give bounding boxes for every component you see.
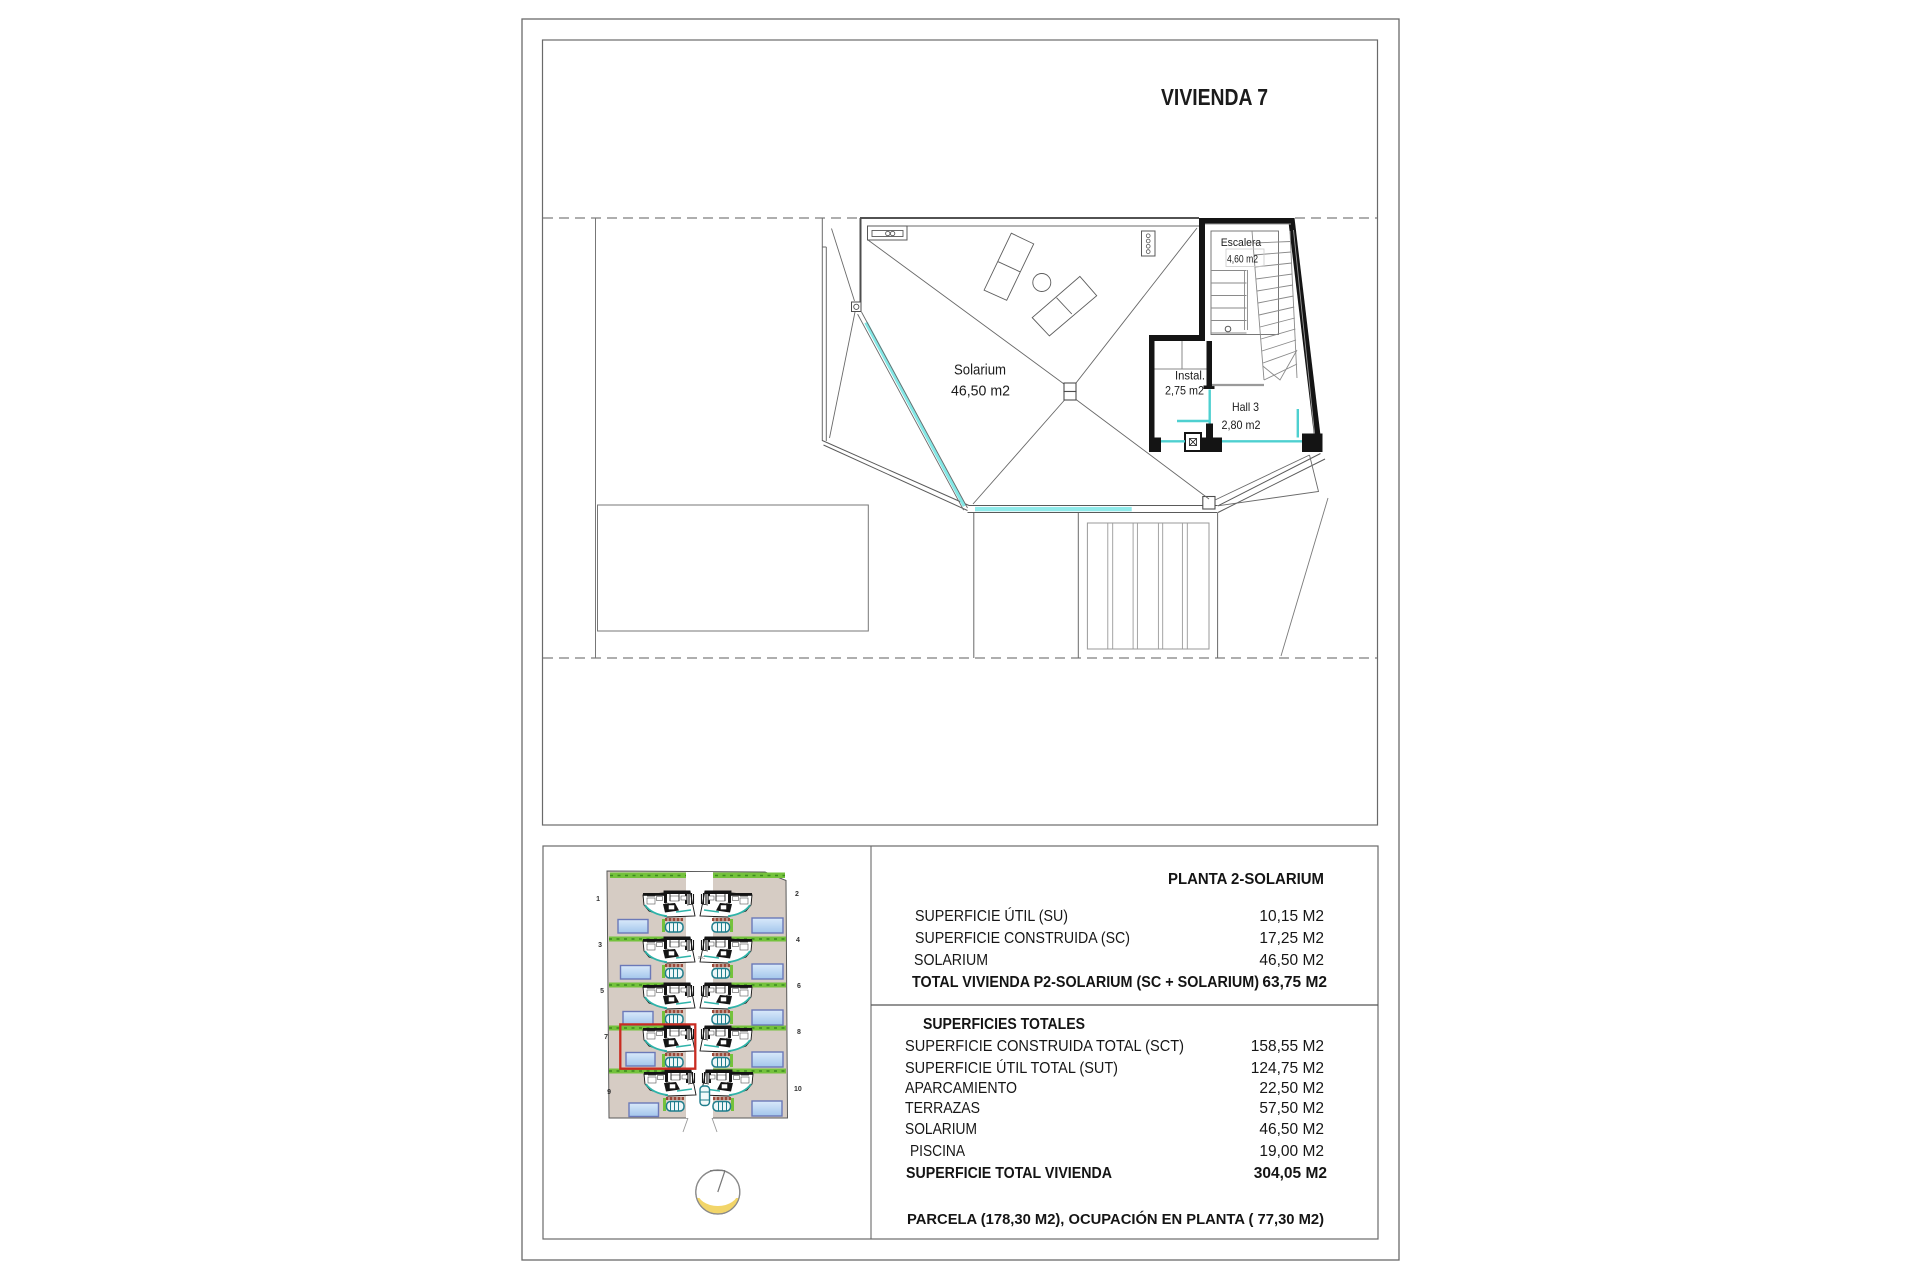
svg-text:SUPERFICIE TOTAL VIVIENDA: SUPERFICIE TOTAL VIVIENDA [906, 1165, 1112, 1182]
svg-text:8: 8 [797, 1029, 801, 1036]
svg-text:SUPERFICIE CONSTRUIDA TOTAL (S: SUPERFICIE CONSTRUIDA TOTAL (SCT) [905, 1038, 1184, 1055]
svg-text:57,50 M2: 57,50 M2 [1259, 1100, 1324, 1117]
svg-text:10: 10 [794, 1086, 802, 1093]
svg-text:APARCAMIENTO: APARCAMIENTO [905, 1080, 1017, 1097]
svg-text:124,75 M2: 124,75 M2 [1251, 1060, 1324, 1077]
svg-text:PISCINA: PISCINA [910, 1143, 966, 1160]
svg-text:s.c: s.c [698, 955, 705, 961]
svg-text:Solarium: Solarium [954, 362, 1006, 379]
svg-text:TERRAZAS: TERRAZAS [905, 1100, 980, 1117]
svg-text:Instal.: Instal. [1175, 371, 1205, 383]
svg-text:SUPERFICIES TOTALES: SUPERFICIES TOTALES [923, 1016, 1085, 1033]
svg-text:7: 7 [604, 1034, 608, 1041]
svg-text:SUPERFICIE CONSTRUIDA (SC): SUPERFICIE CONSTRUIDA (SC) [915, 930, 1130, 947]
svg-text:4: 4 [796, 937, 800, 944]
svg-text:17,25 M2: 17,25 M2 [1259, 930, 1324, 947]
svg-text:19,00 M2: 19,00 M2 [1259, 1143, 1324, 1160]
svg-text:SOLARIUM: SOLARIUM [905, 1121, 977, 1138]
svg-text:2,75 m2: 2,75 m2 [1165, 386, 1204, 398]
svg-text:9: 9 [607, 1089, 611, 1096]
svg-text:5: 5 [600, 988, 604, 995]
svg-text:PARCELA (178,30 M2), OCUPACIÓ: PARCELA (178,30 M2), OCUPACIÓN EN PLANTA… [907, 1210, 1324, 1228]
svg-text:2,80 m2: 2,80 m2 [1222, 418, 1261, 432]
svg-text:SUPERFICIE ÚTIL TOTAL (SUT): SUPERFICIE ÚTIL TOTAL (SUT) [905, 1060, 1118, 1077]
svg-text:TOTAL VIVIENDA P2-SOLARIUM (SC: TOTAL VIVIENDA P2-SOLARIUM (SC + SOLARIU… [912, 974, 1259, 991]
svg-text:304,05 M2: 304,05 M2 [1254, 1165, 1327, 1182]
svg-text:10,15 M2: 10,15 M2 [1259, 908, 1324, 925]
svg-text:Hall 3: Hall 3 [1232, 400, 1259, 414]
svg-text:46,50 m2: 46,50 m2 [951, 383, 1010, 400]
svg-text:VIVIENDA 7: VIVIENDA 7 [1161, 84, 1268, 110]
svg-text:46,50 M2: 46,50 M2 [1259, 1121, 1324, 1138]
svg-text:SUPERFICIE ÚTIL (SU): SUPERFICIE ÚTIL (SU) [915, 908, 1068, 925]
svg-text:PLANTA 2-SOLARIUM: PLANTA 2-SOLARIUM [1168, 871, 1324, 888]
svg-text:3: 3 [598, 942, 602, 949]
svg-text:1: 1 [596, 896, 600, 903]
svg-text:63,75 M2: 63,75 M2 [1262, 974, 1327, 991]
svg-text:2: 2 [795, 891, 799, 898]
svg-text:SOLARIUM: SOLARIUM [914, 952, 988, 969]
svg-text:6: 6 [797, 983, 801, 990]
svg-text:Escalera: Escalera [1221, 237, 1262, 249]
svg-text:46,50 M2: 46,50 M2 [1259, 952, 1324, 969]
svg-text:158,55 M2: 158,55 M2 [1251, 1038, 1324, 1055]
svg-text:4,60 m2: 4,60 m2 [1227, 254, 1258, 266]
svg-text:22,50 M2: 22,50 M2 [1259, 1080, 1324, 1097]
